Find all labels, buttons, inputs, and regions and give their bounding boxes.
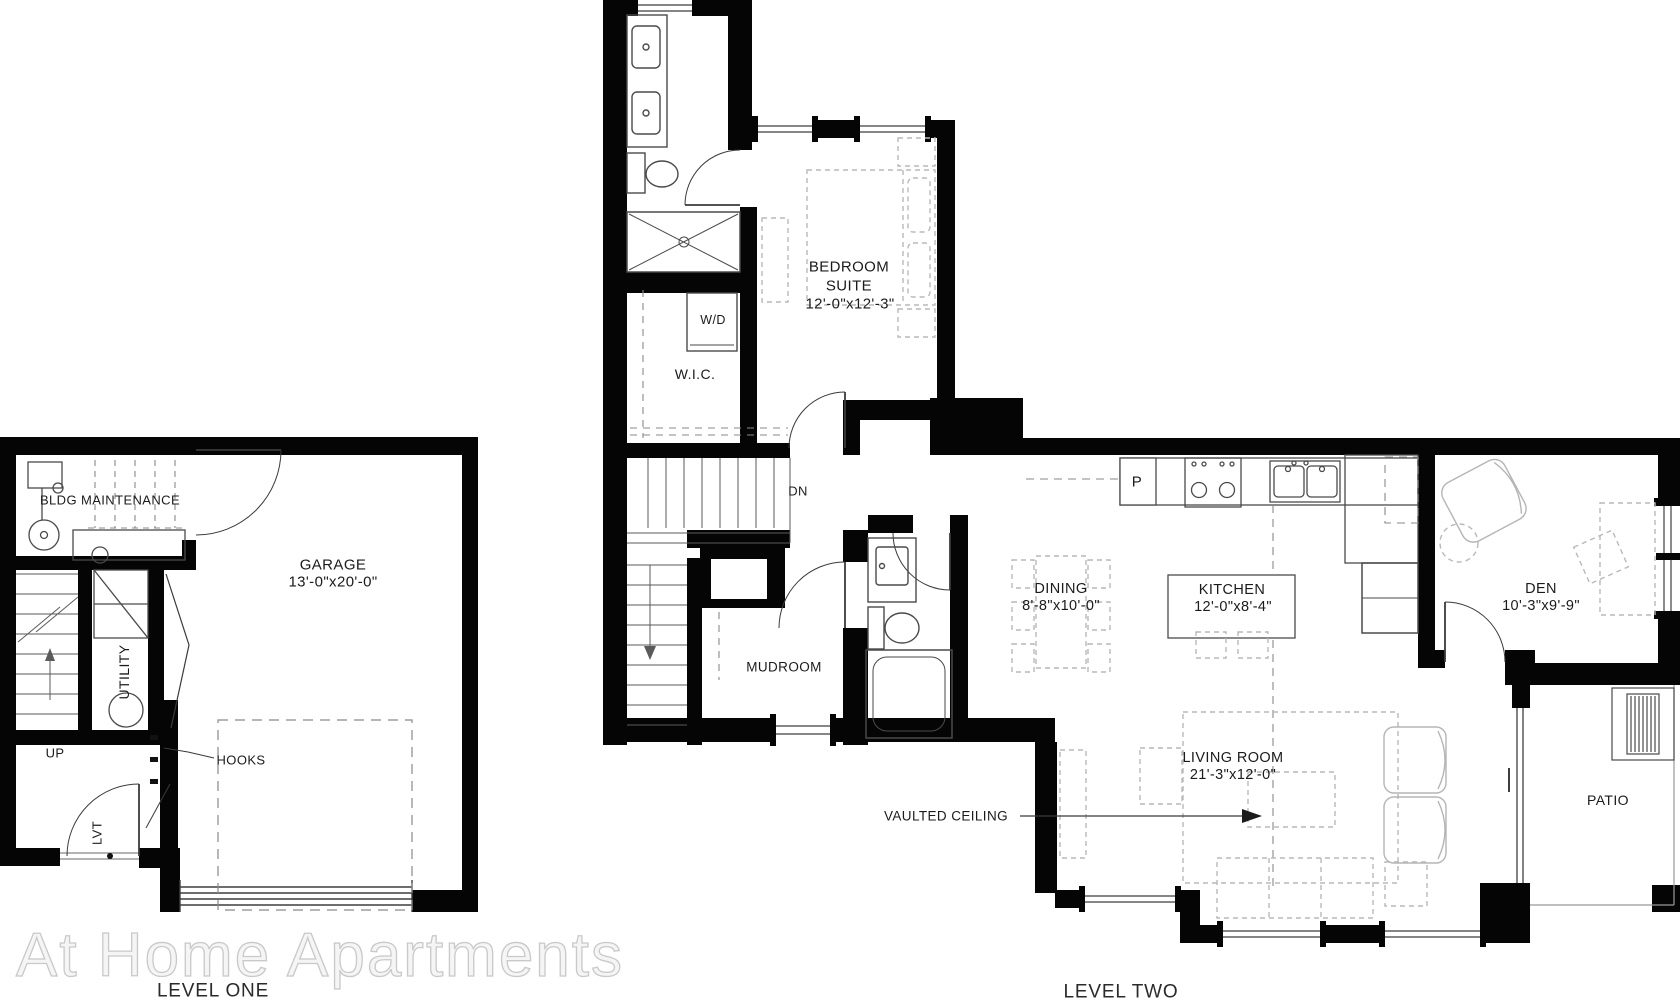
- level-one-plan: [0, 437, 478, 912]
- room-label-bedroom-suite-1: BEDROOM: [809, 260, 889, 275]
- water-heater-icon: [29, 520, 59, 550]
- mudroom-closet: [711, 559, 767, 599]
- toilet-icon: [868, 607, 884, 649]
- annotation-hooks: HOOKS: [217, 754, 266, 767]
- annotation-dn: DN: [788, 485, 808, 498]
- pillow: [908, 178, 930, 232]
- vanity-icon: [627, 15, 667, 147]
- room-dims-den: 10'-3"x9'-9": [1502, 599, 1580, 614]
- level-two-doors: [685, 150, 1505, 662]
- room-label-kitchen: KITCHEN: [1199, 583, 1265, 598]
- parking-space-dashed: [218, 720, 412, 910]
- sofa: [1217, 858, 1373, 918]
- kitchen-sink-icon: [1270, 461, 1340, 502]
- kitchen-counter: [1120, 458, 1418, 505]
- ottoman: [1140, 748, 1182, 804]
- watermark: At Home Apartments: [16, 920, 624, 991]
- annotation-lvt: LVT: [91, 821, 104, 845]
- nightstand: [898, 138, 935, 166]
- floor-plan-drawing: [0, 0, 1680, 1005]
- stairs-up: [16, 574, 78, 714]
- nightstand: [898, 309, 935, 337]
- master-bath-fixtures: [627, 15, 740, 351]
- room-label-bedroom-suite-2: SUITE: [826, 279, 872, 294]
- utility-sink-icon: [28, 462, 62, 488]
- floorplan-screenshot: BLDG MAINTENANCE GARAGE 13'-0"x20'-0" UT…: [0, 0, 1680, 1005]
- sink-icon: [632, 26, 660, 68]
- den-armchair: [1438, 455, 1531, 546]
- room-label-mudroom: MUDROOM: [746, 660, 822, 674]
- kitchen-dashed-items: [1026, 457, 1418, 886]
- sink-icon: [632, 92, 660, 134]
- dining-chair: [1012, 560, 1034, 588]
- kitchen-counter-return: [1345, 455, 1418, 563]
- tv-console: [1060, 750, 1086, 858]
- room-label-garage: GARAGE: [300, 558, 367, 573]
- room-label-utility: UTILITY: [117, 645, 131, 700]
- armchair: [1384, 727, 1446, 793]
- room-dims-living-room: 21'-3"x12'-0": [1190, 768, 1276, 783]
- room-label-bldg-maintenance: BLDG MAINTENANCE: [40, 494, 180, 507]
- dining-chair: [1012, 644, 1034, 672]
- armchair: [1384, 797, 1446, 863]
- annotation-up: UP: [46, 747, 65, 760]
- hall-bath-fixtures: [866, 538, 952, 738]
- sliding-door: [1509, 708, 1523, 883]
- room-dims-kitchen: 12'-0"x8'-4": [1194, 600, 1272, 615]
- dining-chair: [1088, 560, 1110, 588]
- dresser: [762, 218, 788, 302]
- wic-rods-dashed: [630, 290, 788, 680]
- ac-unit-icon: [1612, 688, 1674, 760]
- dining-chair: [1088, 644, 1110, 672]
- annotation-pantry: P: [1132, 475, 1142, 490]
- level-two-caption: LEVEL TWO: [1064, 983, 1179, 1002]
- side-table: [1385, 862, 1427, 906]
- annotation-wd: W/D: [700, 314, 726, 327]
- room-label-den: DEN: [1525, 582, 1557, 597]
- room-dims-garage: 13'-0"x20'-0": [288, 575, 377, 590]
- maintenance-fixtures: [28, 462, 185, 563]
- lvt-leader-dot: [107, 853, 113, 859]
- toilet-icon: [627, 153, 645, 193]
- room-label-patio: PATIO: [1587, 793, 1629, 807]
- room-label-dining: DINING: [1034, 582, 1087, 597]
- entry-threshold: [60, 853, 139, 859]
- desk-chair: [1574, 530, 1629, 584]
- room-label-wic: W.I.C.: [675, 367, 716, 381]
- room-dims-dining: 8'-8"x10'-0": [1022, 599, 1100, 614]
- stairs-down-arrow: [644, 646, 656, 660]
- garage-door: [180, 880, 412, 912]
- room-dims-bedroom-suite: 12'-0"x12'-3": [805, 297, 894, 312]
- room-label-living-room: LIVING ROOM: [1182, 751, 1283, 766]
- pillow: [908, 243, 930, 297]
- workbench-icon: [73, 530, 185, 560]
- annotation-vaulted-ceiling: VAULTED CEILING: [884, 809, 1008, 823]
- desk: [1600, 503, 1655, 615]
- window-gaps: [638, 0, 1680, 943]
